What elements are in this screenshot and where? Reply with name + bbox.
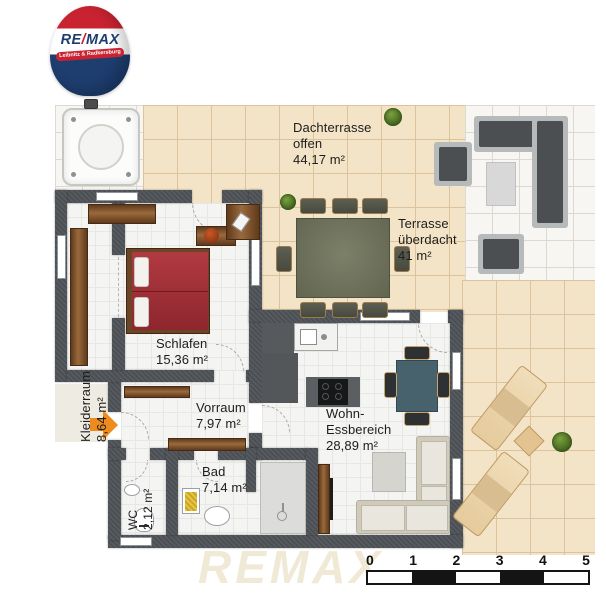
sideboard: [168, 438, 246, 451]
logo-wordmark: RE/MAX: [50, 32, 130, 48]
laptop: [231, 212, 250, 232]
hot-tub-jet: [71, 117, 76, 122]
washbasin: [204, 506, 230, 526]
window: [96, 192, 138, 201]
floor-plan: Dachterrasse offen 44,17 m² Terrasse übe…: [0, 0, 606, 600]
scale-segments: [366, 570, 590, 585]
room-name: Vorraum: [196, 400, 246, 416]
room-label-terrasse: Terrasse überdacht 41 m²: [398, 216, 457, 264]
hot-tub: [62, 108, 140, 186]
scale-tick-label: 5: [582, 552, 590, 568]
room-area: 7,97 m²: [196, 416, 246, 432]
room-name: Dachterrasse: [293, 120, 372, 136]
room-name: WC: [126, 454, 141, 530]
room-qualifier: überdacht: [398, 232, 457, 248]
room-name-2: Essbereich: [326, 422, 391, 438]
scale-tick-label: 0: [366, 552, 374, 568]
room-label-bad: Bad 7,14 m²: [202, 464, 247, 496]
room-name: Terrasse: [398, 216, 457, 232]
outdoor-armchair: [478, 234, 524, 274]
dining-chair: [437, 372, 450, 398]
window: [57, 235, 66, 279]
faucet: [321, 334, 327, 340]
sideboard: [124, 386, 190, 398]
wall-segment: [166, 448, 178, 535]
room-label-vorraum: Vorraum 7,97 m²: [196, 400, 246, 432]
cooktop: [318, 379, 348, 405]
window: [452, 458, 461, 500]
scale-tick-label: 3: [496, 552, 504, 568]
outdoor-chair: [300, 198, 326, 214]
dining-table: [396, 360, 438, 412]
room-area: 44,17 m²: [293, 152, 372, 168]
room-name: Wohn-: [326, 406, 391, 422]
tv-screen: [330, 478, 333, 520]
scale-bar: 0 1 2 3 4 5: [366, 552, 590, 585]
room-name: Schlafen: [156, 336, 208, 352]
remax-balloon-logo: RE/MAX Leibnitz & Radkersburg: [36, 6, 148, 110]
dining-chair: [384, 372, 397, 398]
room-area: 8,64 m²: [94, 270, 110, 442]
window: [452, 352, 461, 390]
wall-segment: [306, 448, 318, 535]
room-area: 15,36 m²: [156, 352, 208, 368]
kitchen-sink-counter: [294, 323, 338, 351]
hot-tub-basin: [78, 124, 124, 170]
wall-segment: [55, 190, 67, 382]
room-area: 28,89 m²: [326, 438, 391, 454]
desk: [226, 204, 260, 240]
plant-icon: [384, 108, 402, 126]
scale-tick-label: 2: [452, 552, 460, 568]
scale-tick-label: 1: [409, 552, 417, 568]
shower-drain: [277, 511, 287, 521]
room-area: 41 m²: [398, 248, 457, 264]
room-name: Kleiderraum: [78, 270, 94, 442]
room-label-wohn-essbereich: Wohn- Essbereich 28,89 m²: [326, 406, 391, 454]
outdoor-dining-table: [296, 218, 390, 298]
balloon-basket: [84, 99, 98, 109]
window: [120, 537, 152, 546]
hot-tub-jet: [126, 172, 131, 177]
room-qualifier: offen: [293, 136, 372, 152]
outdoor-chair: [300, 302, 326, 318]
dining-chair: [404, 346, 430, 360]
outdoor-chair: [276, 246, 292, 272]
towels: [185, 492, 197, 511]
plant-icon: [280, 194, 296, 210]
wall-segment: [246, 448, 256, 492]
shower: [260, 462, 306, 534]
balloon-icon: RE/MAX Leibnitz & Radkersburg: [50, 6, 130, 96]
potted-plant-icon: [204, 228, 219, 243]
wall-segment: [108, 448, 126, 460]
hot-tub-jet: [126, 117, 131, 122]
wall-segment: [112, 318, 125, 370]
outdoor-chair: [332, 302, 358, 318]
watermark-text: REMAX: [198, 540, 384, 594]
open-passage-line: [118, 257, 119, 317]
outdoor-armchair: [434, 142, 472, 186]
hot-tub-jet: [71, 172, 76, 177]
outdoor-sofa: [532, 116, 568, 228]
kitchen-island: [306, 377, 360, 407]
wall-segment: [249, 323, 262, 403]
room-label-dachterrasse: Dachterrasse offen 44,17 m²: [293, 120, 372, 168]
outdoor-chair: [362, 302, 388, 318]
logo-banner: Leibnitz & Radkersburg: [56, 48, 124, 62]
room-label-wc: WC 2,12 m²: [126, 454, 156, 530]
kitchen-counter: [262, 323, 294, 353]
scale-tick-label: 4: [539, 552, 547, 568]
coffee-table: [372, 452, 406, 492]
tv-cabinet: [318, 464, 330, 534]
outdoor-coffee-table: [486, 162, 516, 206]
outdoor-chair: [362, 198, 388, 214]
room-label-schlafen: Schlafen 15,36 m²: [156, 336, 208, 368]
towel-shelf: [182, 488, 200, 514]
wardrobe: [88, 204, 156, 224]
bed: [126, 248, 210, 334]
kitchen-tall-cabinet: [262, 353, 298, 403]
logo-max: MAX: [86, 32, 119, 48]
scale-numbers: 0 1 2 3 4 5: [366, 552, 590, 570]
room-name: Bad: [202, 464, 247, 480]
room-area: 2,12 m²: [141, 454, 156, 530]
room-label-kleiderraum: Kleiderraum 8,64 m²: [78, 270, 112, 442]
room-area: 7,14 m²: [202, 480, 247, 496]
sofa: [356, 500, 450, 534]
outdoor-chair: [332, 198, 358, 214]
dining-chair: [404, 412, 430, 426]
logo-re: RE: [61, 32, 82, 48]
plant-icon: [552, 432, 572, 452]
